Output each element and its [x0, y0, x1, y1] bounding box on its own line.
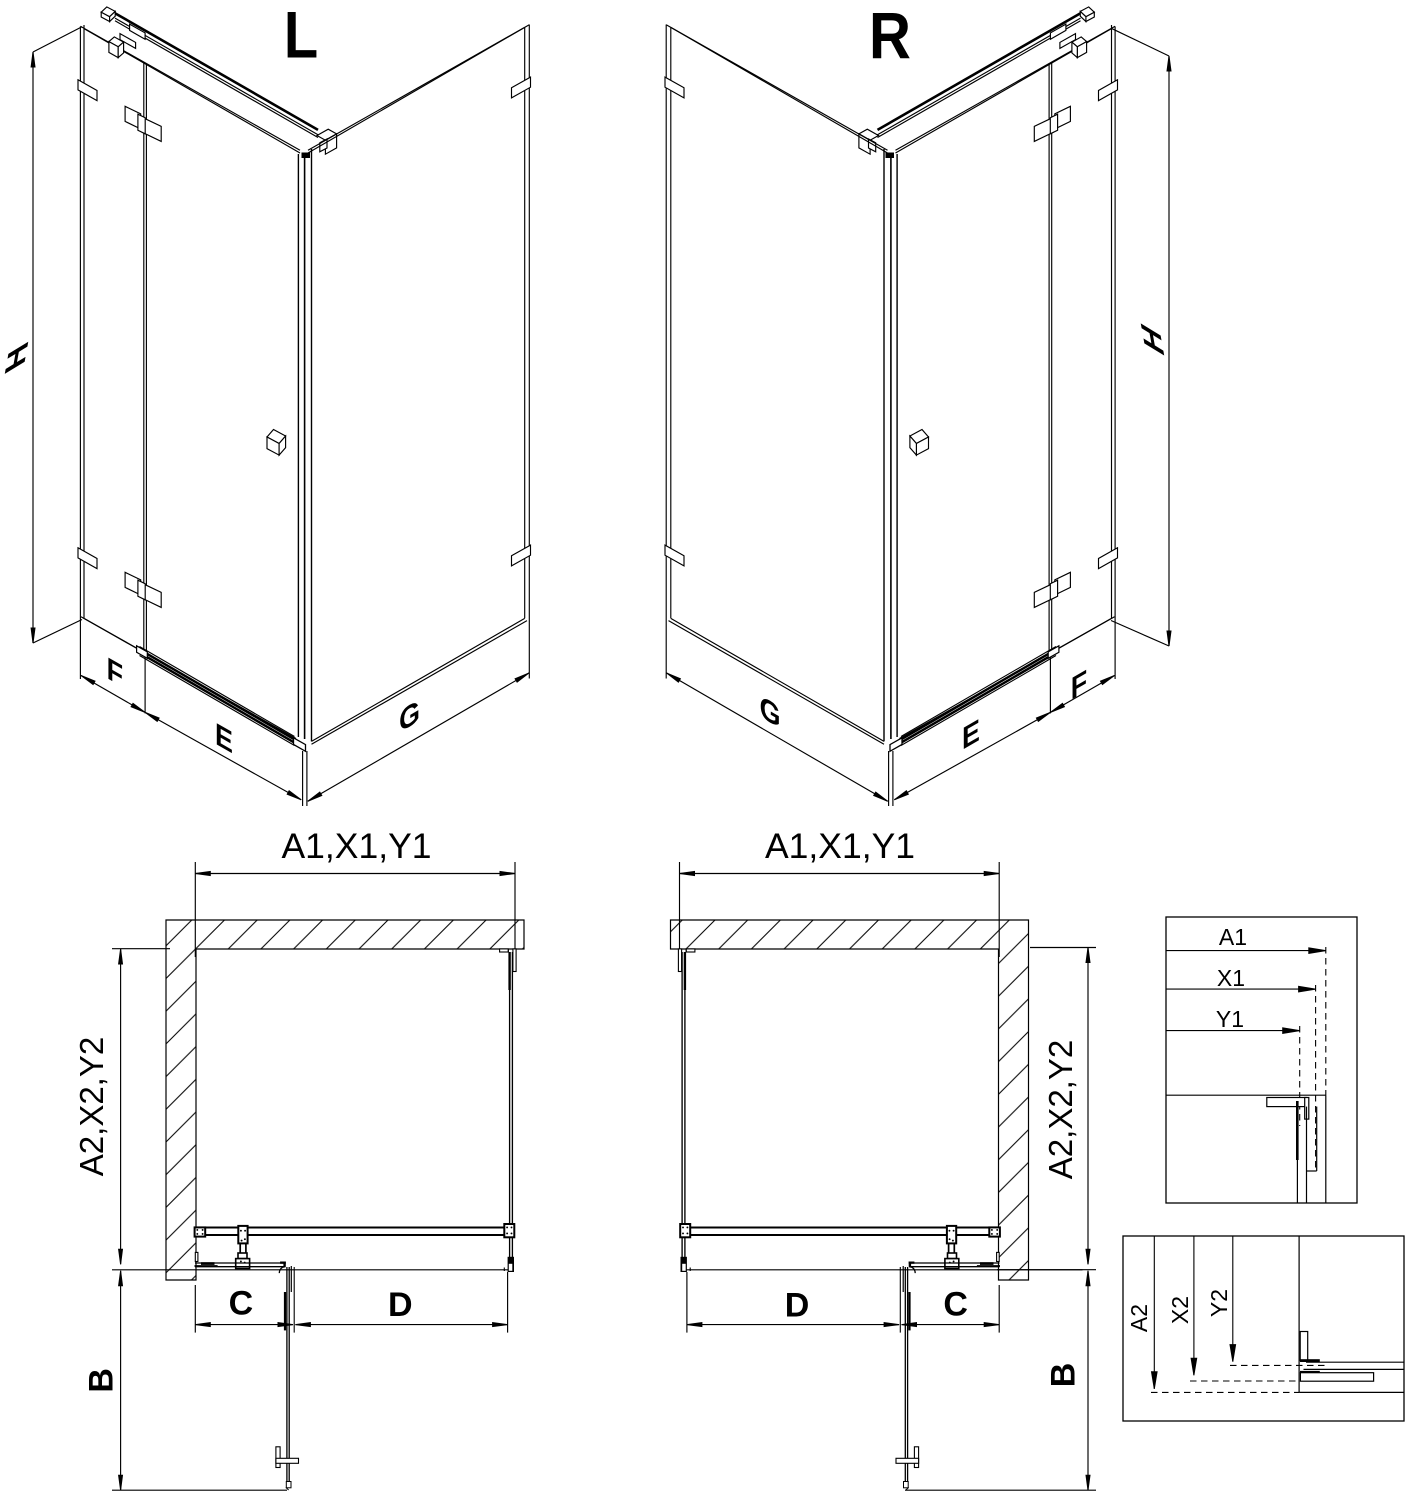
svg-text:R: R — [869, 0, 911, 73]
svg-text:B: B — [83, 1368, 121, 1393]
svg-text:C: C — [943, 1286, 968, 1324]
svg-text:A1,X1,Y1: A1,X1,Y1 — [282, 826, 432, 866]
svg-text:C: C — [229, 1285, 254, 1323]
svg-text:A2: A2 — [1126, 1304, 1152, 1332]
svg-text:A1,X1,Y1: A1,X1,Y1 — [765, 826, 915, 866]
svg-text:A2,X2,Y2: A2,X2,Y2 — [1042, 1040, 1079, 1179]
svg-text:D: D — [388, 1286, 413, 1324]
svg-text:B: B — [1045, 1363, 1083, 1388]
svg-text:L: L — [284, 0, 318, 72]
svg-text:Y2: Y2 — [1206, 1289, 1232, 1317]
svg-text:D: D — [785, 1287, 810, 1325]
svg-text:Y1: Y1 — [1216, 1006, 1244, 1032]
svg-text:A1: A1 — [1219, 924, 1247, 950]
svg-text:A2,X2,Y2: A2,X2,Y2 — [73, 1037, 110, 1176]
svg-text:X1: X1 — [1217, 965, 1245, 991]
svg-text:X2: X2 — [1167, 1296, 1193, 1324]
